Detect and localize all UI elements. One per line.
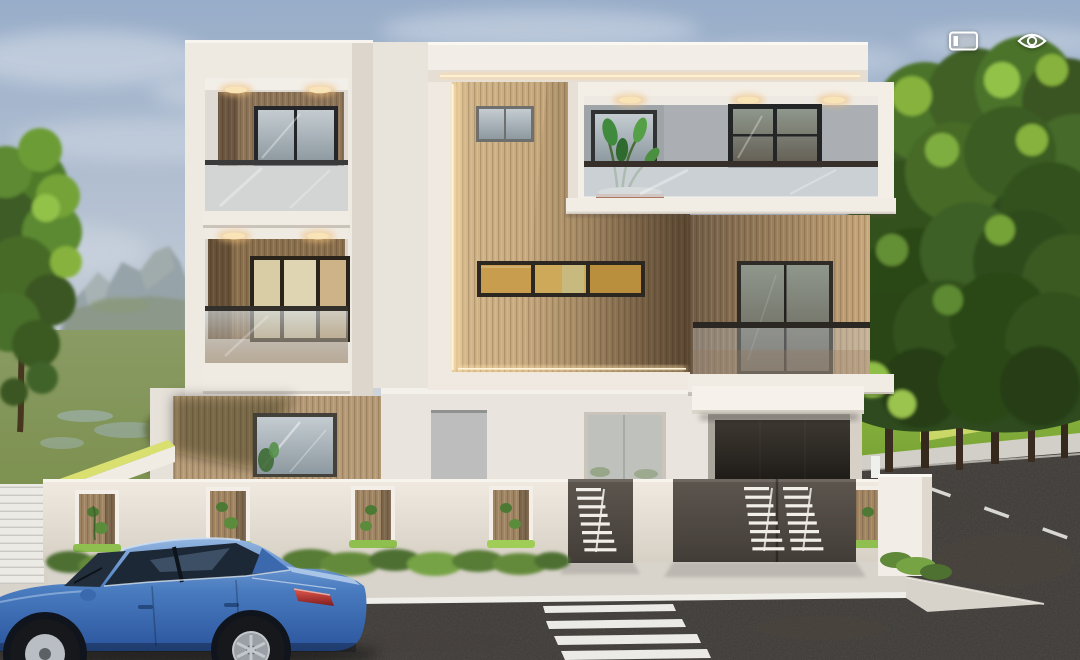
balcony-door <box>728 104 822 168</box>
ground-window <box>253 413 337 477</box>
planter-niche <box>349 486 397 548</box>
feature-frame-left <box>428 58 452 388</box>
ceiling-light <box>303 84 337 97</box>
left-fence <box>0 484 48 584</box>
planter-niche <box>487 486 535 548</box>
side-mirror <box>80 589 96 601</box>
feature-frame-bottom <box>428 372 690 390</box>
scene-canvas <box>0 0 1080 660</box>
door-handle <box>138 605 153 609</box>
ground-timber-wall <box>173 396 381 480</box>
panel-toggle-icon[interactable] <box>948 30 980 52</box>
balustrade-rail <box>205 160 348 165</box>
balcony-cornice <box>566 198 896 214</box>
amber-window-band <box>477 261 645 297</box>
render-viewport[interactable] <box>0 0 1080 660</box>
small-window <box>476 106 534 142</box>
entry-door <box>584 412 666 480</box>
window <box>254 106 338 166</box>
ceiling-light <box>301 230 335 243</box>
eye-icon[interactable] <box>1016 30 1048 52</box>
left-balcony-tower <box>185 40 373 402</box>
right-timber-floor <box>688 215 894 396</box>
ceiling-light <box>817 94 851 107</box>
planter-niche <box>73 490 121 552</box>
balustrade-rail <box>205 306 348 311</box>
garage-door <box>715 420 852 480</box>
pedestrian-gate <box>568 479 633 563</box>
tower-balcony-upper <box>205 78 348 211</box>
balustrade-rail <box>584 161 878 167</box>
house <box>150 40 896 480</box>
tower-balcony-middle <box>205 228 350 363</box>
ceiling-light <box>217 230 251 243</box>
viewport-toolbar <box>948 30 1048 52</box>
garage-canopy <box>692 386 864 414</box>
ceiling-light <box>219 84 253 97</box>
side-glass-panel <box>431 410 487 480</box>
ceiling-light <box>613 94 647 107</box>
driveway-gate <box>673 479 856 562</box>
balustrade-rail <box>693 322 870 328</box>
cantilever-balcony <box>566 82 896 217</box>
roof-fascia <box>428 42 868 82</box>
garage <box>692 386 864 480</box>
upper-wall-left <box>373 42 430 388</box>
